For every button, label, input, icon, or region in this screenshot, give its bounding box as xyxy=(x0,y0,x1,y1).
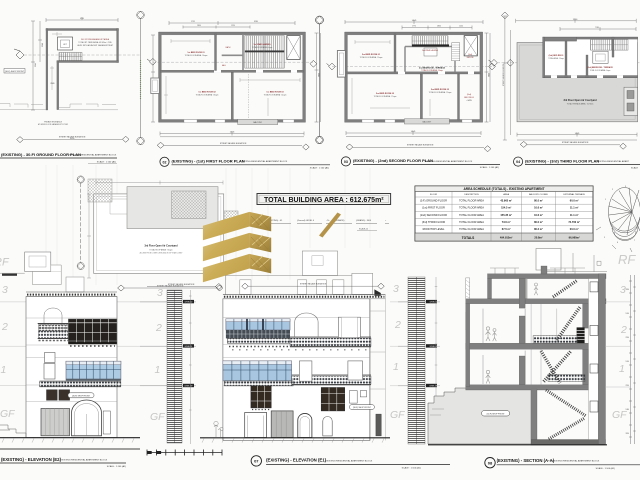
svg-text:(2nd): (2nd) xyxy=(468,54,472,56)
svg-text:3340: 3340 xyxy=(42,43,44,47)
svg-text:7: 7 xyxy=(634,240,635,242)
svg-text:BED RM 04: BED RM 04 xyxy=(464,97,474,99)
svg-text:DESCRIPTION: DESCRIPTION xyxy=(464,194,479,196)
svg-text:1080: 1080 xyxy=(625,409,629,411)
svg-text:TOTAL FLOOR AREA: TOTAL FLOOR AREA xyxy=(459,198,484,202)
svg-text:(3rd) THIRD FLOOR: (3rd) THIRD FLOOR xyxy=(422,220,445,224)
svg-text:EXTERNAL TERRACE: EXTERNAL TERRACE xyxy=(564,193,586,196)
svg-text:TOTAL FLOOR AREA: TOTAL FLOOR AREA xyxy=(459,213,484,217)
svg-text:3rd Floor Open Air Courtyard: 3rd Floor Open Air Courtyard xyxy=(563,99,597,102)
svg-text:3: 3 xyxy=(625,186,626,188)
svg-text:(30.F) SHOP FRONT: (30.F) SHOP FRONT xyxy=(487,414,506,416)
svg-text:(3rd) BED RM 01: (3rd) BED RM 01 xyxy=(549,55,564,57)
svg-text:YARD: YARD xyxy=(50,82,55,85)
svg-text:2950: 2950 xyxy=(625,385,629,387)
svg-text:TOTAL BUILDING AREA : 612.675: TOTAL BUILDING AREA : 612.675m² xyxy=(264,197,384,204)
svg-text:(3rd) BEDROOM - TERRACE: (3rd) BEDROOM - TERRACE xyxy=(587,66,613,69)
svg-text:(EXISTING) - (3rd) THIRD FLOOR: (EXISTING) - (3rd) THIRD FLOOR PLAN xyxy=(525,158,599,163)
svg-text:- EXISTING RESIDENTIAL APARTME: - EXISTING RESIDENTIAL APARTMENT BLOCK xyxy=(324,459,373,462)
svg-text:11.1 m²: 11.1 m² xyxy=(570,206,579,210)
svg-text:2950: 2950 xyxy=(625,337,629,339)
svg-text:RF: RF xyxy=(618,252,636,267)
svg-text:(EXISTING) - SECTION (A-A): (EXISTING) - SECTION (A-A) xyxy=(497,458,555,463)
svg-text:2nd STAIR LANDING: 2nd STAIR LANDING xyxy=(422,49,439,52)
svg-text:LEVEL GF: LEVEL GF xyxy=(429,385,437,387)
svg-text:SCALE-12: SCALE-12 xyxy=(359,228,368,231)
svg-text:96.960m²: 96.960m² xyxy=(569,236,580,240)
svg-text:154.5 m²: 154.5 m² xyxy=(501,206,511,210)
svg-text:2: 2 xyxy=(394,319,401,331)
svg-text:(EXISTING) - ELEVATION (E1): (EXISTING) - ELEVATION (E1) xyxy=(266,458,327,463)
svg-text:TOTAL FLOOR AREA : 18sqm: TOTAL FLOOR AREA : 18sqm xyxy=(196,94,219,97)
svg-text:SCALE: SCALE xyxy=(631,166,639,169)
svg-text:STREET FACADE ELEVATION: STREET FACADE ELEVATION xyxy=(300,283,327,286)
svg-text:AREA: AREA xyxy=(503,193,509,196)
svg-text:- EXISTING RESIDENTIAL APART: - EXISTING RESIDENTIAL APART xyxy=(595,160,630,163)
svg-text:3: 3 xyxy=(157,287,163,299)
svg-text:2nd BED ROOM 03: 2nd BED ROOM 03 xyxy=(431,89,450,91)
svg-text:STREET FACADE ELEVATION: STREET FACADE ELEVATION xyxy=(59,136,86,139)
svg-text:(0.F) GROUND FLOOR: (0.F) GROUND FLOOR xyxy=(420,198,447,202)
svg-text:10.6 m²: 10.6 m² xyxy=(534,213,543,217)
svg-text:TOTAL ROOF AREA : 74sqm: TOTAL ROOF AREA : 74sqm xyxy=(149,249,173,252)
svg-text:- EXISTING RESIDENTIAL APARTME: - EXISTING RESIDENTIAL APARTMENT BLOCK xyxy=(59,459,108,462)
svg-text:67.5 m²: 67.5 m² xyxy=(502,227,511,231)
svg-text:1050: 1050 xyxy=(625,313,629,315)
svg-text:SCALE : 1:100 (A1): SCALE : 1:100 (A1) xyxy=(402,467,421,470)
svg-text:TOTAL FLOOR AREA : 14sqm: TOTAL FLOOR AREA : 14sqm xyxy=(264,94,287,97)
svg-text:2nd BED ROOM 01: 2nd BED ROOM 01 xyxy=(362,54,381,56)
svg-text:TOTAL FLOOR AREA: TOTAL FLOOR AREA xyxy=(459,227,484,231)
svg-text:80.2 m²: 80.2 m² xyxy=(534,227,543,231)
svg-text:2nd BEDROOM - TERRACE: 2nd BEDROOM - TERRACE xyxy=(419,66,446,69)
svg-text:1: 1 xyxy=(393,361,399,373)
svg-text:(EXISTING) - (2nd) SECOND FLOO: (EXISTING) - (2nd) SECOND FLOOR PLAN xyxy=(353,158,433,163)
svg-text:5: 5 xyxy=(604,237,605,239)
svg-text:TOTAL TERRACE AREA : 74.760m: TOTAL TERRACE AREA : 74.760m xyxy=(567,103,594,106)
svg-text:3: 3 xyxy=(2,284,8,296)
svg-text:TOTAL FLOOR AREA: TOTAL FLOOR AREA xyxy=(459,220,484,224)
svg-text:TOTALS: TOTALS xyxy=(462,236,474,240)
svg-text:(30.F) SHOP FRONT: (30.F) SHOP FRONT xyxy=(72,395,91,397)
svg-text:GF: GF xyxy=(390,409,405,421)
svg-text:30.F STORE/GARAGE/LIFT AREA: 30.F STORE/GARAGE/LIFT AREA xyxy=(81,38,110,41)
svg-text:TOTAL FLOOR AREA : 16sqm: TOTAL FLOOR AREA : 16sqm xyxy=(185,54,208,57)
svg-text:- EXISTING RESIDENTIAL APARTME: - EXISTING RESIDENTIAL APARTMENT BLOCK xyxy=(239,160,288,163)
svg-text:FLOOR: FLOOR xyxy=(430,194,438,196)
svg-text:2: 2 xyxy=(1,321,8,333)
svg-text:1: 1 xyxy=(1,364,7,376)
svg-text:3rd Floor Open Air Courtyard: 3rd Floor Open Air Courtyard xyxy=(144,245,178,248)
svg-text:60.0 m²: 60.0 m² xyxy=(570,198,579,202)
svg-text:- EXISTING RESIDENTIAL APARTME: - EXISTING RESIDENTIAL APARTMENT BLOCK xyxy=(68,154,117,157)
svg-text:74.760 m²: 74.760 m² xyxy=(568,220,580,224)
svg-text:BATH: BATH xyxy=(226,46,231,49)
svg-text:43.965 m²: 43.965 m² xyxy=(500,198,512,202)
svg-text:2: 2 xyxy=(155,322,162,334)
svg-text:02: 02 xyxy=(163,160,167,164)
svg-text:STREET FACADE ELEVATION: STREET FACADE ELEVATION xyxy=(220,142,247,145)
svg-text:73.6 m²: 73.6 m² xyxy=(502,220,511,224)
svg-text:11.1 m²: 11.1 m² xyxy=(570,213,579,217)
svg-text:STREET FACADE ELEVATION: STREET FACADE ELEVATION xyxy=(407,144,434,147)
svg-text:3: 3 xyxy=(393,283,399,295)
svg-text:08: 08 xyxy=(488,461,493,466)
svg-text:BALCONY: BALCONY xyxy=(423,120,432,123)
svg-text:1050: 1050 xyxy=(625,361,629,363)
svg-text:2850: 2850 xyxy=(625,289,629,291)
svg-text:04: 04 xyxy=(516,160,520,164)
svg-text:9040: 9040 xyxy=(489,73,491,77)
svg-text:LEVEL 02: LEVEL 02 xyxy=(185,302,193,304)
svg-text:BED RM: BED RM xyxy=(467,57,474,59)
svg-text:80.0 m²: 80.0 m² xyxy=(534,220,543,224)
svg-text:80.0 m²: 80.0 m² xyxy=(534,198,543,202)
svg-text:(1st) FIRST FLOOR: (1st) FIRST FLOOR xyxy=(422,206,445,210)
svg-text:2: 2 xyxy=(620,324,627,336)
svg-text:20.8m²: 20.8m² xyxy=(534,236,542,240)
svg-text:9345: 9345 xyxy=(35,63,37,67)
svg-text:LEVEL 01: LEVEL 01 xyxy=(185,346,193,348)
svg-text:10.6 m²: 10.6 m² xyxy=(534,206,543,210)
svg-text:07: 07 xyxy=(254,459,259,464)
svg-text:- EXISTING RESIDENTIAL APARTME: - EXISTING RESIDENTIAL APARTMENT BLOCK xyxy=(424,160,473,163)
svg-text:LEVEL GF: LEVEL GF xyxy=(184,385,192,387)
svg-text:SCALE : 1:100 (A1): SCALE : 1:100 (A1) xyxy=(310,167,329,170)
svg-text:1: 1 xyxy=(155,364,161,376)
svg-text:PRIVATE ENTRANCE: PRIVATE ENTRANCE xyxy=(44,121,63,124)
svg-text:(GRAND) - 30.B: (GRAND) - 30.B xyxy=(356,219,372,222)
svg-text:(30.F) SHOP FRONT: (30.F) SHOP FRONT xyxy=(5,71,25,73)
svg-text:STREET FACADE ELEVATION: STREET FACADE ELEVATION xyxy=(562,141,589,144)
svg-text:(EXISTING) - (1st) FIRST FLOOR: (EXISTING) - (1st) FIRST FLOOR PLAN xyxy=(172,159,245,164)
svg-text:3350: 3350 xyxy=(625,433,629,435)
svg-text:155.35 m²: 155.35 m² xyxy=(500,213,512,217)
svg-text:2nd BED ROOM 02: 2nd BED ROOM 02 xyxy=(376,93,395,95)
svg-text:SCALE : 1:100 (A1): SCALE : 1:100 (A1) xyxy=(596,467,615,470)
svg-text:- EXISTING RESIDENTIAL APARTME: - EXISTING RESIDENTIAL APARTMENT BLOCK xyxy=(551,460,600,463)
svg-text:(2nd) SECOND FLOOR: (2nd) SECOND FLOOR xyxy=(420,213,447,217)
svg-text:1: 1 xyxy=(605,199,606,201)
svg-text:494.915m²: 494.915m² xyxy=(500,236,513,240)
svg-text:1: 1 xyxy=(619,363,625,375)
svg-text:GF: GF xyxy=(150,411,165,423)
svg-text:2: 2 xyxy=(612,189,613,191)
svg-text:1st BED ROOM 03: 1st BED ROOM 03 xyxy=(266,91,284,94)
svg-text:1st STAIR LANDING: 1st STAIR LANDING xyxy=(253,43,271,46)
svg-text:SCALE : 1:100 (A1): SCALE : 1:100 (A1) xyxy=(97,161,116,164)
svg-text:1st BED ROOM 01: 1st BED ROOM 01 xyxy=(187,51,205,54)
svg-text:BALCONY CLOSED: BALCONY CLOSED xyxy=(529,193,549,196)
svg-text:TOTAL FLOOR AREA : 12sqm: TOTAL FLOOR AREA : 12sqm xyxy=(429,91,452,94)
svg-text:ROOF/TOP LEVEL: ROOF/TOP LEVEL xyxy=(423,227,445,231)
svg-text:00.0 m²: 00.0 m² xyxy=(570,227,579,231)
svg-text:SCALE : 1:100 (A1): SCALE : 1:100 (A1) xyxy=(480,166,499,169)
svg-text:BALCONY: BALCONY xyxy=(253,121,262,124)
svg-text:AREA SCHEDULE (TOTALS) - EXIS: AREA SCHEDULE (TOTALS) - EXISTING APARTM… xyxy=(463,187,544,191)
svg-text:GF: GF xyxy=(0,408,15,420)
svg-text:TOTAL FLOOR AREA : 17sqm: TOTAL FLOOR AREA : 17sqm xyxy=(374,95,397,98)
svg-text:6: 6 xyxy=(617,242,618,244)
svg-text:SCALE : 1:100 (A1): SCALE : 1:100 (A1) xyxy=(107,465,126,468)
svg-text:(30.F) SHOP FRONT: (30.F) SHOP FRONT xyxy=(353,407,372,409)
svg-text:(Ground) LEVEL 0: (Ground) LEVEL 0 xyxy=(297,219,315,222)
svg-text:TOTAL FLOOR AREA: TOTAL FLOOR AREA xyxy=(459,206,484,210)
svg-text:RF: RF xyxy=(0,257,10,269)
svg-text:TOTAL INT. YARD AREA: 43.965m: TOTAL INT. YARD AREA: 43.965m / 474ft xyxy=(78,41,112,44)
svg-text:STREET FACADE ELEVATION: STREET FACADE ELEVATION xyxy=(168,283,195,286)
svg-text:03: 03 xyxy=(344,160,348,164)
svg-text:TOTAL FLOOR AREA : 15sqm: TOTAL FLOOR AREA : 15sqm xyxy=(360,56,383,59)
svg-text:- N -: - N - xyxy=(326,220,330,222)
svg-text:(EXISTING) - ELEVATION (E2): (EXISTING) - ELEVATION (E2) xyxy=(1,457,62,462)
svg-text:(2nd): (2nd) xyxy=(467,94,472,96)
svg-text:1st BED ROOM 02: 1st BED ROOM 02 xyxy=(198,91,216,94)
svg-text:LEVEL WITH ADJACENT GARAGE/STR: LEVEL WITH ADJACENT GARAGE/STREET xyxy=(77,44,114,47)
